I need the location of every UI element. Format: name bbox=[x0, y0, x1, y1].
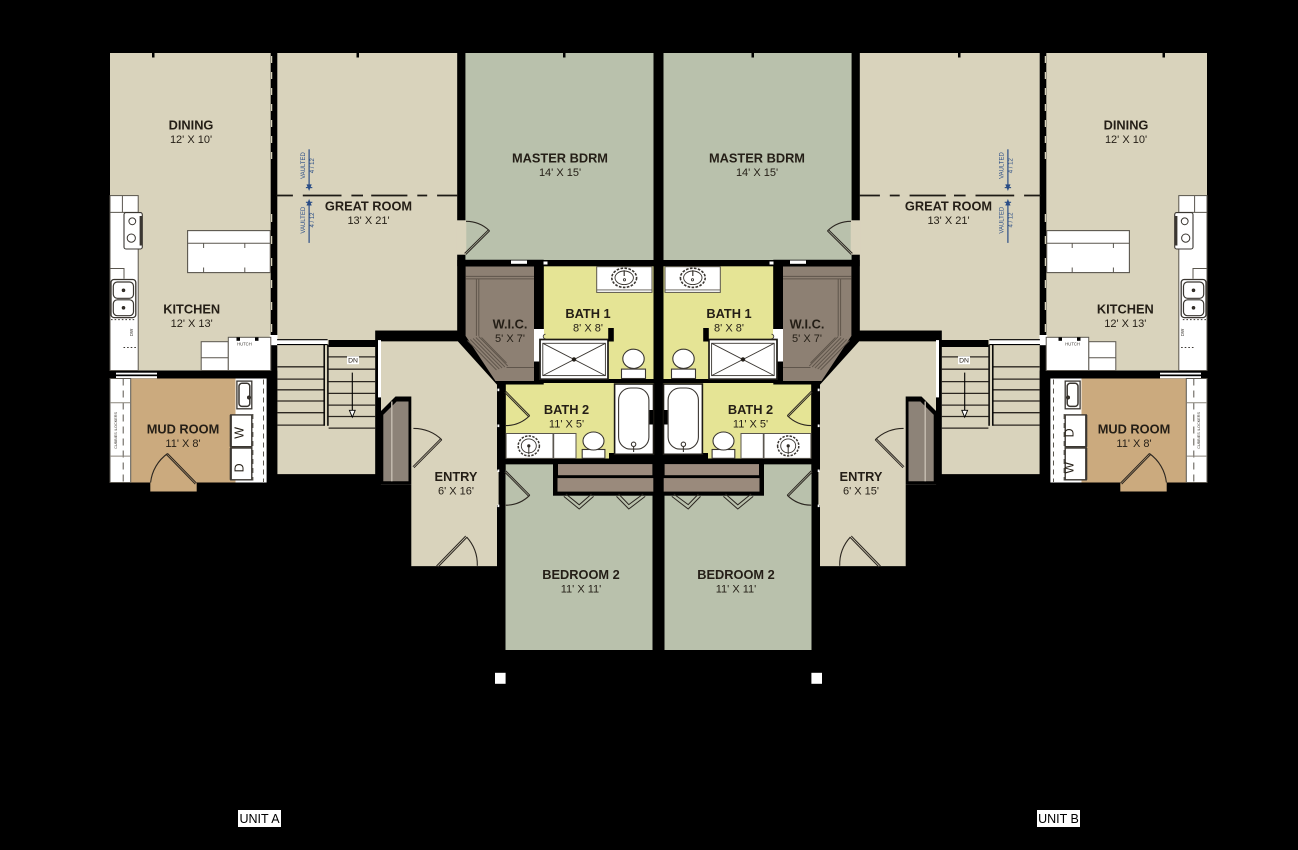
svg-text:MUD ROOM: MUD ROOM bbox=[1098, 422, 1171, 437]
svg-text:W: W bbox=[233, 427, 247, 439]
svg-text:BATH 2: BATH 2 bbox=[544, 402, 589, 417]
svg-text:11' X 11': 11' X 11' bbox=[716, 584, 757, 596]
svg-text:11' X 5': 11' X 5' bbox=[733, 419, 768, 431]
svg-text:W.I.C.: W.I.C. bbox=[790, 317, 825, 332]
svg-text:DN: DN bbox=[348, 358, 358, 365]
svg-text:13' X 21': 13' X 21' bbox=[927, 215, 969, 227]
svg-text:HUTCH: HUTCH bbox=[237, 342, 252, 347]
svg-text:DW: DW bbox=[129, 328, 134, 336]
svg-text:ENTRY: ENTRY bbox=[840, 469, 883, 484]
svg-text:BATH 2: BATH 2 bbox=[728, 402, 773, 417]
svg-text:CUBBIES /LOCKERS: CUBBIES /LOCKERS bbox=[114, 411, 118, 448]
svg-text:8' X 8': 8' X 8' bbox=[573, 323, 603, 335]
svg-text:UNIT A: UNIT A bbox=[239, 812, 280, 826]
svg-text:BEDROOM 2: BEDROOM 2 bbox=[697, 567, 775, 582]
svg-text:GREAT ROOM: GREAT ROOM bbox=[325, 199, 412, 214]
svg-text:VAULTED: VAULTED bbox=[301, 151, 307, 178]
svg-text:11' X 5': 11' X 5' bbox=[549, 419, 584, 431]
svg-text:KITCHEN: KITCHEN bbox=[163, 302, 220, 317]
svg-text:12' X 10': 12' X 10' bbox=[1105, 134, 1147, 146]
svg-text:14' X 15': 14' X 15' bbox=[736, 167, 778, 179]
svg-text:4 / 12: 4 / 12 bbox=[310, 212, 316, 228]
svg-text:11' X 8': 11' X 8' bbox=[165, 438, 200, 450]
svg-text:DW: DW bbox=[1180, 328, 1185, 336]
svg-text:4 / 12: 4 / 12 bbox=[310, 158, 316, 174]
svg-text:5' X 7': 5' X 7' bbox=[792, 333, 822, 345]
svg-text:BEDROOM 2: BEDROOM 2 bbox=[542, 567, 620, 582]
svg-text:BATH 1: BATH 1 bbox=[706, 306, 751, 321]
svg-text:4 / 12: 4 / 12 bbox=[1009, 212, 1015, 228]
svg-text:W.I.C.: W.I.C. bbox=[493, 317, 528, 332]
svg-text:MUD ROOM: MUD ROOM bbox=[147, 422, 220, 437]
svg-text:BATH 1: BATH 1 bbox=[565, 306, 610, 321]
svg-text:D: D bbox=[233, 463, 247, 472]
svg-text:VAULTED: VAULTED bbox=[301, 206, 307, 233]
svg-text:KITCHEN: KITCHEN bbox=[1097, 302, 1154, 317]
svg-text:ENTRY: ENTRY bbox=[435, 469, 478, 484]
svg-text:5' X 7': 5' X 7' bbox=[495, 333, 525, 345]
svg-text:CUBBIES /LOCKERS: CUBBIES /LOCKERS bbox=[1197, 411, 1201, 448]
svg-text:11' X 11': 11' X 11' bbox=[561, 584, 602, 596]
svg-text:14' X 15': 14' X 15' bbox=[539, 167, 581, 179]
svg-text:13' X 21': 13' X 21' bbox=[347, 215, 389, 227]
svg-text:12' X 13': 12' X 13' bbox=[171, 318, 213, 330]
svg-text:W: W bbox=[1063, 462, 1077, 474]
svg-text:HUTCH: HUTCH bbox=[1065, 342, 1080, 347]
svg-text:12' X 13': 12' X 13' bbox=[1104, 318, 1146, 330]
svg-text:DN: DN bbox=[959, 358, 969, 365]
svg-text:11' X 8': 11' X 8' bbox=[1116, 438, 1151, 450]
svg-text:4 / 12: 4 / 12 bbox=[1009, 158, 1015, 174]
svg-text:MASTER BDRM: MASTER BDRM bbox=[709, 151, 805, 166]
svg-text:VAULTED: VAULTED bbox=[1000, 206, 1006, 233]
svg-text:D: D bbox=[1063, 428, 1077, 437]
svg-text:MASTER BDRM: MASTER BDRM bbox=[512, 151, 608, 166]
svg-text:8' X 8': 8' X 8' bbox=[714, 323, 744, 335]
svg-text:DINING: DINING bbox=[169, 118, 214, 133]
svg-text:12' X 10': 12' X 10' bbox=[170, 134, 212, 146]
svg-text:DINING: DINING bbox=[1104, 118, 1149, 133]
svg-text:6' X 15': 6' X 15' bbox=[843, 486, 879, 498]
svg-text:UNIT B: UNIT B bbox=[1038, 812, 1079, 826]
svg-text:6' X 16': 6' X 16' bbox=[438, 486, 474, 498]
svg-text:GREAT ROOM: GREAT ROOM bbox=[905, 199, 992, 214]
svg-text:VAULTED: VAULTED bbox=[1000, 151, 1006, 178]
